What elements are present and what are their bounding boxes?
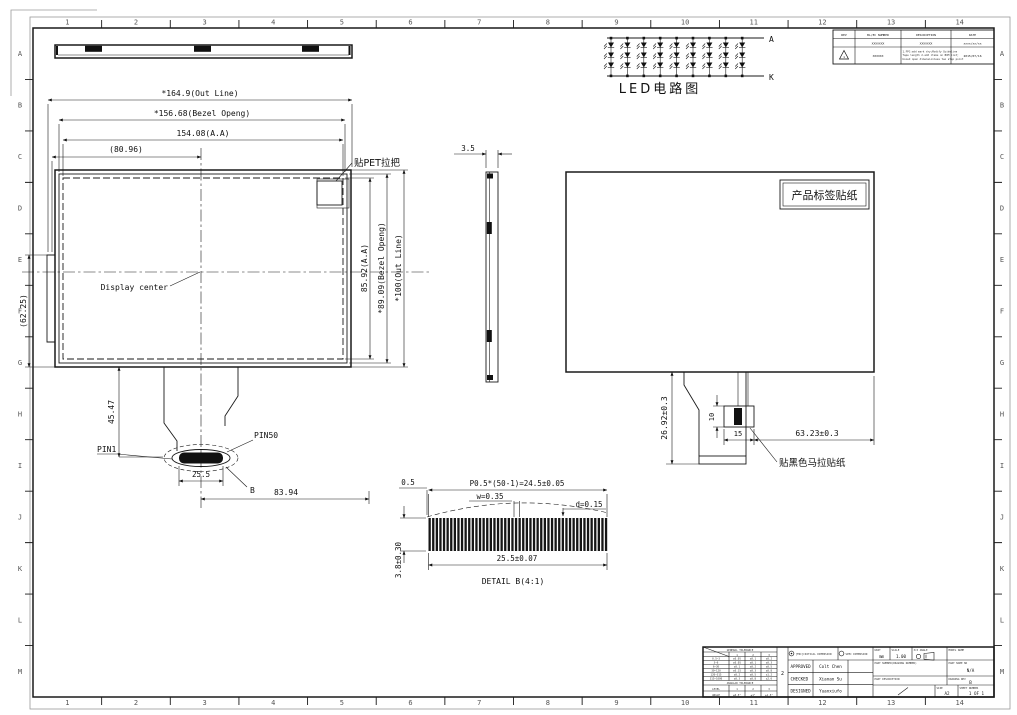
led-diode-icon: [735, 63, 745, 70]
connector-tooth: [522, 518, 524, 551]
part-name-value: N/A: [967, 668, 975, 673]
connector-tooth: [551, 518, 553, 551]
led-diode-icon: [686, 53, 696, 60]
connector-tooth: [454, 518, 456, 551]
connector-tooth: [511, 518, 513, 551]
led-diode-icon: [620, 53, 630, 60]
grid-col-label: 2: [134, 19, 138, 27]
led-diode-icon: [620, 43, 630, 50]
led-diode-icon: [604, 63, 614, 70]
revision-triangle-number: 1: [843, 55, 845, 59]
pet-tab-label: 贴PET拉把: [354, 157, 401, 169]
display-center-label: Display center: [101, 283, 169, 292]
dim-pitch: P0.5*(50-1)=24.5±0.05: [470, 479, 565, 488]
grid-row-label: C: [1000, 153, 1004, 161]
led-array: [604, 37, 745, 77]
grid-row-label: M: [18, 668, 22, 676]
tolerance-cell: ±0.1: [750, 661, 757, 665]
grid-col-label: 8: [546, 19, 550, 27]
slash-mark: [898, 688, 908, 696]
pet-tab-frame: [317, 179, 349, 208]
connector-tooth: [493, 518, 495, 551]
connector-tooth: [461, 518, 463, 551]
connector-tooth: [598, 518, 600, 551]
grid-row-label: H: [1000, 410, 1004, 418]
connector-tooth: [544, 518, 546, 551]
connector-tooth: [558, 518, 560, 551]
pin50-label: PIN50: [254, 431, 278, 440]
dim-detail-width: 25.5±0.07: [497, 554, 538, 563]
top-view-tab: [194, 46, 211, 52]
connector-tooth: [475, 518, 477, 551]
dim-thickness: 3.5: [461, 144, 475, 153]
mylar-label: 贴黑色马拉贴纸: [779, 457, 846, 469]
led-diode-icon: [670, 63, 680, 70]
svg-text:LEVEL: LEVEL: [712, 687, 720, 691]
sticker-label: 产品标签贴纸: [792, 188, 858, 202]
led-diode-icon: [653, 53, 663, 60]
svg-text:1: 1: [736, 687, 738, 691]
size-label: SIZE: [937, 686, 944, 690]
grid-row-label: J: [1000, 513, 1004, 521]
tolerance-cell: ±0.3: [766, 661, 773, 665]
connector-tooth: [439, 518, 441, 551]
led-diode-icon: [670, 53, 680, 60]
connector-tooth: [533, 518, 535, 551]
rev-row2-date: 2015/07/16: [963, 54, 981, 58]
led-diode-icon: [604, 53, 614, 60]
designed-name: Yuanxiufo: [819, 689, 842, 694]
led-diode-icon: [702, 53, 712, 60]
rev-header: REV: [841, 33, 847, 37]
corner-crop-mark: [11, 10, 97, 96]
svg-text:±1°: ±1°: [751, 693, 756, 697]
rev-row2-desc-line: boxed open dimensionless two step point: [903, 57, 964, 61]
dim-aa-width: 154.08(A.A): [177, 129, 230, 138]
led-diode-icon: [719, 63, 729, 70]
top-view-end-cap-left: [56, 46, 58, 55]
connector-tooth: [501, 518, 503, 551]
drawing-rev-value: B: [969, 680, 972, 685]
led-diode-icon: [620, 63, 630, 70]
tolerance-cell: 6~30: [713, 665, 720, 669]
tolerance-cell: ±0.1: [734, 665, 741, 669]
spec-dimension-icon: [839, 651, 844, 656]
front-view: *164.9(Out Line) *156.68(Bezel Openg) 15…: [19, 89, 430, 508]
grid-row-label: I: [18, 462, 22, 470]
critical-dimension-label: [FNC]CRITICAL DIMENSION: [796, 652, 832, 656]
selected-tolerance-level: 2: [781, 671, 784, 677]
part-name-label: PART NAME NO: [949, 661, 968, 665]
led-diode-icon: [637, 63, 647, 70]
grid-col-label: 12: [818, 699, 826, 707]
connector-tooth: [486, 518, 488, 551]
top-view-end-cap-right: [349, 46, 351, 55]
led-diode-icon: [670, 43, 680, 50]
title-block: GENERAL TOLERANCE1230.5~3±0.05±0.1±0.23~…: [703, 647, 994, 697]
tolerance-table: GENERAL TOLERANCE1230.5~3±0.05±0.1±0.23~…: [703, 647, 777, 697]
side-view: 3.5: [454, 144, 512, 382]
led-diode-icon: [637, 43, 647, 50]
connector-tooth: [555, 518, 557, 551]
projection-angle-label: 3rd ANGLE: [914, 648, 928, 652]
approved-name: Colt Chen: [819, 664, 842, 669]
led-diode-icon: [735, 43, 745, 50]
tolerance-cell: ±0.15: [733, 669, 741, 673]
tolerance-cell: ±0.5: [766, 665, 773, 669]
dim-outline-height: *100(Out Line): [394, 234, 403, 301]
general-tolerance-header: GENERAL TOLERANCE: [727, 648, 754, 652]
grid-col-label: 10: [681, 699, 689, 707]
checked-name: Xianan Su: [819, 676, 842, 681]
tolerance-cell: 30~120: [711, 669, 721, 673]
led-circuit: A K LED电路图: [604, 35, 774, 97]
grid-row-label: J: [18, 513, 22, 521]
grid-row-label: F: [1000, 308, 1004, 316]
grid-row-label: H: [18, 410, 22, 418]
tolerance-cell: ±0.2: [734, 673, 741, 677]
connector-tooth: [504, 518, 506, 551]
grid-col-label: 3: [202, 19, 206, 27]
connector-tooth: [508, 518, 510, 551]
connector-tooth: [490, 518, 492, 551]
grid-row-label: B: [1000, 102, 1004, 110]
connector-tooth: [601, 518, 603, 551]
number-header: BL/EC NUMBER: [867, 33, 889, 37]
top-view: [55, 45, 352, 58]
connector-tooth: [565, 518, 567, 551]
pin1-label: PIN1: [97, 445, 116, 454]
grid-col-label: 4: [271, 19, 275, 27]
back-view: 产品标签贴纸 10 15 63.23±0.3 26.92±0.3 贴黑色马拉贴纸: [566, 172, 874, 469]
dim-connector-x: 83.94: [274, 488, 298, 497]
connector-tooth: [429, 518, 431, 551]
scale-label: SCALE: [892, 648, 900, 652]
cathode-label: K: [769, 73, 774, 82]
grid-col-label: 3: [202, 699, 206, 707]
connector-tooth: [576, 518, 578, 551]
part-number-label: PART NUMBER(DRAWING NUMBER): [875, 661, 918, 665]
svg-text:±1.5°: ±1.5°: [765, 693, 773, 697]
connector-tooth: [447, 518, 449, 551]
grid-col-label: 11: [750, 19, 758, 27]
rev-row-number: XXXXXXX: [872, 42, 885, 46]
tolerance-cell: ±0.3: [734, 677, 741, 681]
left-lip: [47, 255, 55, 342]
grid-col-label: 14: [955, 699, 963, 707]
grid-row-label: A: [18, 50, 23, 58]
connector-tooth: [547, 518, 549, 551]
grid-row-label: L: [1000, 616, 1004, 624]
led-diode-icon: [637, 53, 647, 60]
led-diode-icon: [735, 53, 745, 60]
side-tab: [487, 222, 492, 234]
tolerance-cell: ±0.8: [766, 669, 773, 673]
connector-tooth: [594, 518, 596, 551]
size-value: A2: [944, 691, 950, 696]
led-diode-icon: [653, 43, 663, 50]
connector-tooth: [483, 518, 485, 551]
tolerance-cell: 3~6: [714, 661, 719, 665]
tolerance-cell: ±0.1: [750, 657, 757, 661]
grid-col-label: 7: [477, 699, 481, 707]
part-description-label: PART DESCRIPTION: [875, 677, 900, 681]
drawing-sheet: 11223344556677889910101111121213131414AA…: [0, 0, 1017, 715]
rev-row2-desc-line: 1.FPC:add mark dry;Modify Guideline: [903, 50, 958, 54]
connector-tooth: [605, 518, 607, 551]
grid-col-label: 13: [887, 19, 895, 27]
dim-tape-x: 63.23±0.3: [795, 429, 839, 438]
svg-text:ANGLE: ANGLE: [712, 693, 720, 697]
rev-row2-number: XXXXXX: [873, 54, 884, 58]
grid-col-label: 5: [340, 699, 344, 707]
grid-col-label: 11: [750, 699, 758, 707]
led-diode-icon: [719, 43, 729, 50]
connector-tooth: [497, 518, 499, 551]
dim-detail-height: 3.8±0.30: [394, 541, 403, 578]
detail-b-title: DETAIL B(4:1): [482, 577, 545, 586]
grid-row-label: L: [18, 616, 22, 624]
revision-table: REV BL/EC NUMBER DESCRIPTION DATE XXXXXX…: [833, 30, 994, 64]
dim-tape-height: 10: [708, 413, 716, 421]
grid-row-label: D: [18, 205, 22, 213]
top-view-tab: [302, 46, 319, 52]
connector-tooth: [587, 518, 589, 551]
grid-row-label: E: [18, 256, 22, 264]
rev-row-description: XXXXXXX: [920, 42, 933, 46]
designed-role: DESIGNED: [791, 689, 812, 694]
connector-tooth: [468, 518, 470, 551]
grid-col-label: 5: [340, 19, 344, 27]
tolerance-cell: ±0.5: [750, 673, 757, 677]
grid-row-label: K: [1000, 565, 1005, 573]
grid-row-label: M: [1000, 668, 1004, 676]
svg-text:2: 2: [752, 687, 754, 691]
tolerance-cell: 120~315: [711, 673, 722, 677]
grid-col-label: 6: [408, 699, 412, 707]
approved-role: APPROVED: [791, 664, 812, 669]
connector-tooth: [443, 518, 445, 551]
connector-tooth: [537, 518, 539, 551]
connector-tooth: [540, 518, 542, 551]
grid-col-label: 6: [408, 19, 412, 27]
detail-b-view: 0.5 P0.5*(50-1)=24.5±0.05 w=0.35 d=0.15 …: [394, 478, 608, 586]
model-name-label: MODEL NAME: [949, 648, 965, 652]
spec-dimension-label: SPEC DIMENSION: [846, 652, 868, 656]
grid-col-label: 13: [887, 699, 895, 707]
grid-col-label: 12: [818, 19, 826, 27]
dim-connector-width: 25.5: [192, 470, 210, 479]
svg-text:±0.5°: ±0.5°: [733, 693, 741, 697]
connector-tooth: [515, 518, 517, 551]
third-angle-projection-icon: [916, 653, 934, 661]
led-diode-icon: [702, 43, 712, 50]
svg-text:3: 3: [768, 687, 770, 691]
tolerance-cell: ±0.05: [733, 661, 741, 665]
rev-row2-desc-line: Tape length 2.add items on BOM list;: [903, 53, 959, 57]
connector-tooth: [519, 518, 521, 551]
dim-tooth-width: w=0.35: [476, 492, 503, 501]
dim-outline-width: *164.9(Out Line): [161, 89, 238, 98]
grid-row-label: B: [18, 102, 22, 110]
anode-label: A: [769, 35, 774, 44]
grid-col-label: 2: [134, 699, 138, 707]
led-circuit-title: LED电路图: [619, 81, 701, 97]
dim-back-fpc-length: 26.92±0.3: [660, 396, 669, 440]
tolerance-cell: 0.5~3: [712, 657, 720, 661]
grid-col-label: 10: [681, 19, 689, 27]
rev-row-date: xxxx/xx/xx: [963, 42, 981, 46]
back-fpc: [684, 372, 754, 464]
led-diode-icon: [686, 43, 696, 50]
grid-row-label: C: [18, 153, 22, 161]
sheet-number-value: 1 OF 1: [969, 691, 985, 696]
led-diode-icon: [604, 43, 614, 50]
grid-col-label: 1: [65, 19, 69, 27]
dim-bezel-width: *156.68(Bezel Openg): [154, 109, 250, 118]
connector-bar: [179, 453, 223, 464]
grid-col-label: 4: [271, 699, 275, 707]
tolerance-cell: ±0.2: [750, 665, 757, 669]
dim-offset: 0.5: [401, 478, 415, 487]
connector-tooth: [479, 518, 481, 551]
grid-col-label: 8: [546, 699, 550, 707]
connector-tooth: [436, 518, 438, 551]
tolerance-cell: ±1.2: [766, 673, 773, 677]
dim-left-height: (62.25): [19, 294, 28, 328]
grid-col-label: 7: [477, 19, 481, 27]
connector-tooth: [562, 518, 564, 551]
grid-row-label: E: [1000, 256, 1004, 264]
connector-teeth: [429, 518, 608, 551]
dim-center-x: (80.96): [109, 145, 143, 154]
drawing-rev-label: DRAWING REV: [949, 677, 967, 681]
tolerance-cell: ±0.05: [733, 657, 741, 661]
led-diode-icon: [653, 63, 663, 70]
tolerance-cell: ±2.0: [766, 677, 773, 681]
tolerance-cell: ±0.3: [750, 669, 757, 673]
connector-tooth: [472, 518, 474, 551]
dim-fpc-length: 45.47: [107, 400, 116, 424]
top-view-tab: [85, 46, 102, 52]
pet-tab-hatch: [317, 181, 342, 205]
angular-tolerance-header: ANGULAR TOLERANCE: [727, 681, 754, 685]
connector-tooth: [465, 518, 467, 551]
tolerance-cell: ±0.2: [766, 657, 773, 661]
led-diode-icon: [719, 53, 729, 60]
unit-label: UNIT: [875, 648, 882, 652]
connector-tooth: [569, 518, 571, 551]
grid-col-label: 14: [955, 19, 963, 27]
grid-col-label: 9: [614, 19, 618, 27]
grid-col-label: 1: [65, 699, 69, 707]
dim-tooth-depth: d=0.15: [575, 500, 602, 509]
tolerance-cell: 315~1000: [710, 677, 723, 681]
sheet-number-label: SHEET NUMBER: [960, 686, 979, 690]
led-diode-icon: [702, 63, 712, 70]
grid-col-label: 9: [614, 699, 618, 707]
grid-row-label: G: [1000, 359, 1004, 367]
grid-row-label: A: [1000, 50, 1005, 58]
checked-role: CHECKED: [791, 676, 809, 681]
dim-aa-height: 85.92(A.A): [360, 244, 369, 292]
connector-tooth: [591, 518, 593, 551]
connector-tooth: [457, 518, 459, 551]
led-diode-icon: [686, 63, 696, 70]
connector-tooth: [529, 518, 531, 551]
grid-row-label: D: [1000, 205, 1004, 213]
grid-row-label: K: [18, 565, 23, 573]
scale-value: 1.00: [896, 654, 907, 659]
connector-tooth: [573, 518, 575, 551]
tolerance-cell: ±0.8: [750, 677, 757, 681]
detail-b-mark: B: [250, 486, 255, 495]
connector-tooth: [526, 518, 528, 551]
date-header: DATE: [969, 33, 976, 37]
dim-bezel-height: *89.09(Bezel Openg): [377, 222, 386, 314]
description-header: DESCRIPTION: [916, 33, 936, 37]
connector-tooth: [580, 518, 582, 551]
side-tab: [487, 330, 492, 342]
connector-tooth: [583, 518, 585, 551]
unit-value: mm: [879, 654, 885, 659]
dim-tape-width: 15: [734, 430, 742, 438]
grid-row-label: I: [1000, 462, 1004, 470]
grid-row-label: G: [18, 359, 22, 367]
connector-tooth: [432, 518, 434, 551]
connector-tooth: [450, 518, 452, 551]
